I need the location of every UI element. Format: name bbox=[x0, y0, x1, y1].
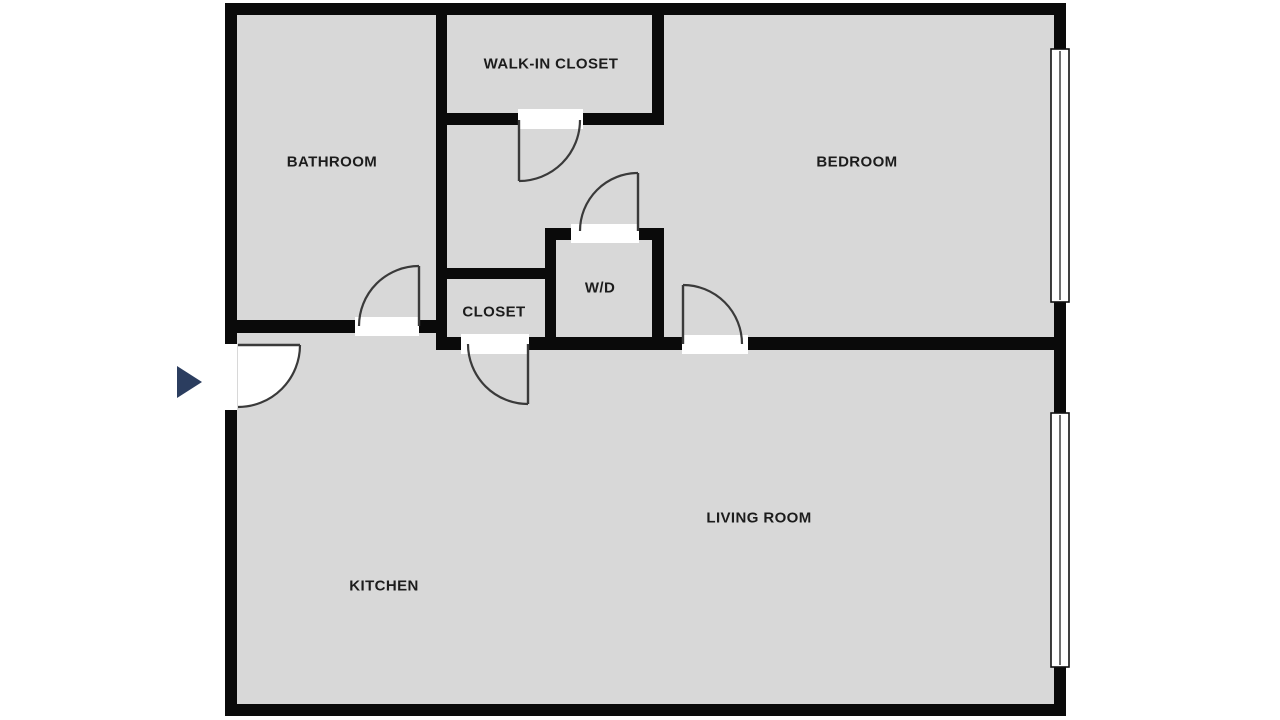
entry-arrow-icon bbox=[177, 366, 202, 398]
bathroom-door-opening bbox=[355, 317, 419, 336]
outer-left-wall-lower bbox=[225, 410, 237, 716]
outer-bottom-wall bbox=[225, 704, 1066, 716]
closet-wd-divider bbox=[545, 228, 556, 350]
room-label-wd: W/D bbox=[585, 280, 615, 297]
outer-top-wall bbox=[225, 3, 1066, 15]
bathroom-hall-divider bbox=[436, 15, 447, 350]
closet-door-opening bbox=[461, 334, 529, 354]
room-label-kitchen: KITCHEN bbox=[349, 578, 418, 595]
closet-top-wall bbox=[436, 268, 556, 279]
room-label-closet: CLOSET bbox=[462, 304, 525, 321]
bedroom-door-opening bbox=[682, 335, 748, 354]
walkin-closet-right bbox=[652, 15, 664, 125]
room-label-living-room: LIVING ROOM bbox=[706, 510, 811, 527]
room-label-bedroom: BEDROOM bbox=[816, 154, 897, 171]
room-label-bathroom: BATHROOM bbox=[287, 154, 377, 171]
floor-plan-drawing bbox=[0, 0, 1280, 720]
room-label-walk-in-closet: WALK-IN CLOSET bbox=[484, 56, 619, 73]
walkin-closet-door-opening bbox=[518, 109, 583, 129]
outer-left-wall-upper bbox=[225, 3, 237, 344]
floor-plan: BATHROOMWALK-IN CLOSETBEDROOMCLOSETW/DLI… bbox=[0, 0, 1280, 720]
wd-right-wall bbox=[652, 228, 664, 350]
